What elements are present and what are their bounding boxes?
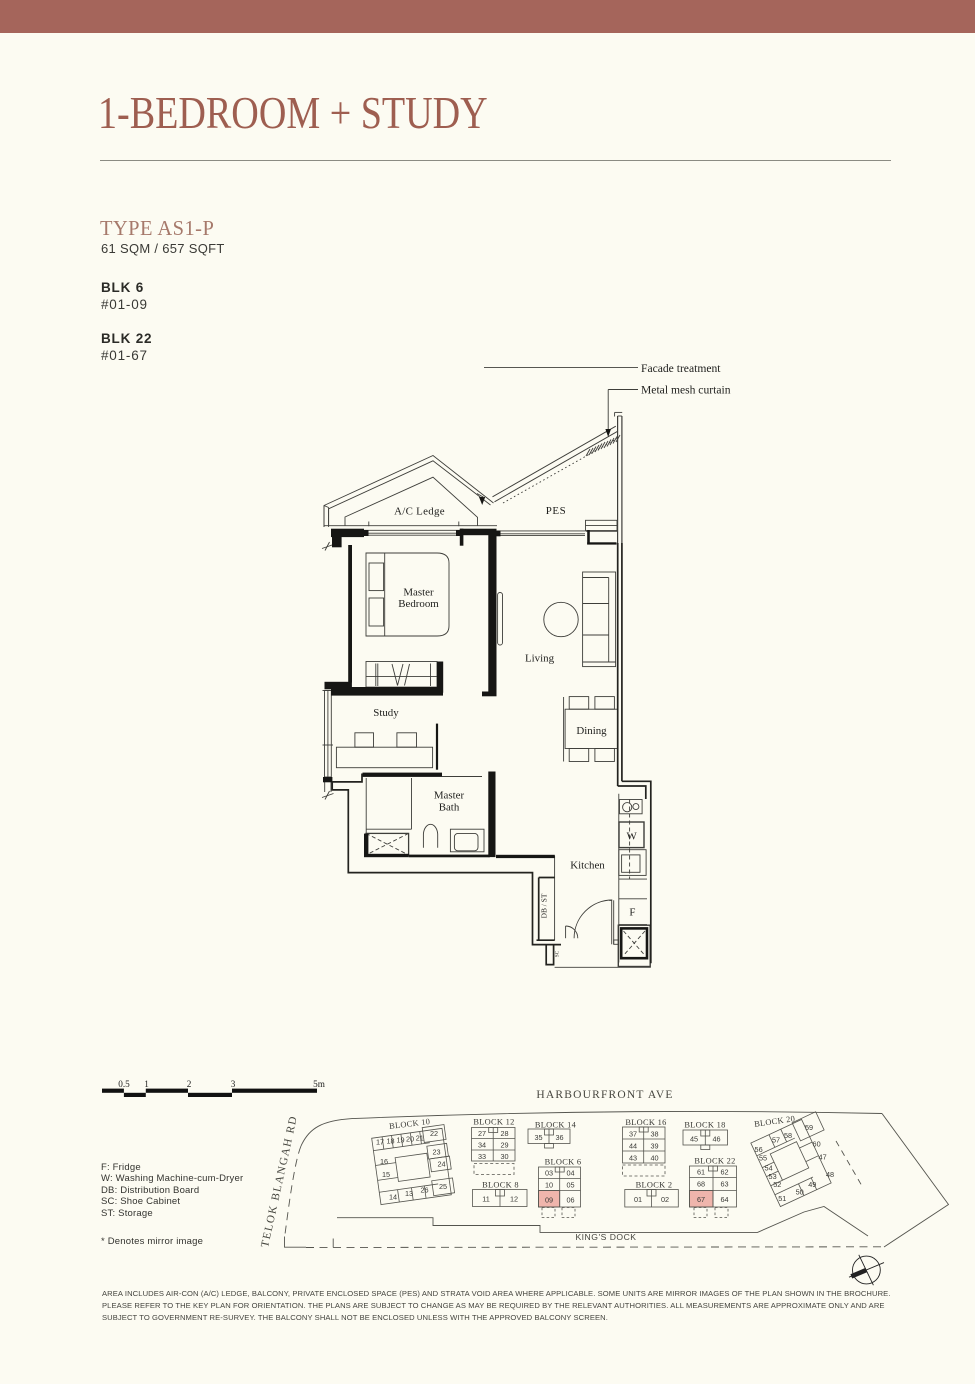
svg-text:BLOCK 14: BLOCK 14 xyxy=(535,1121,577,1130)
svg-text:Living: Living xyxy=(525,653,555,665)
svg-text:49: 49 xyxy=(808,1180,816,1189)
svg-text:30: 30 xyxy=(500,1152,508,1161)
svg-text:04: 04 xyxy=(566,1169,574,1178)
svg-text:48: 48 xyxy=(826,1170,834,1179)
svg-text:0.5: 0.5 xyxy=(118,1079,130,1089)
svg-text:TELOK BLANGAH RD: TELOK BLANGAH RD xyxy=(259,1114,300,1248)
svg-text:45: 45 xyxy=(690,1135,698,1144)
svg-text:SC: SC xyxy=(555,950,560,957)
svg-text:22: 22 xyxy=(430,1129,438,1138)
svg-text:27: 27 xyxy=(478,1129,486,1138)
svg-text:13: 13 xyxy=(405,1189,413,1198)
svg-text:26: 26 xyxy=(420,1186,428,1195)
svg-text:11: 11 xyxy=(482,1195,490,1204)
svg-text:50: 50 xyxy=(796,1188,804,1197)
svg-text:28: 28 xyxy=(500,1129,508,1138)
svg-text:52: 52 xyxy=(773,1180,781,1189)
svg-text:BLOCK 8: BLOCK 8 xyxy=(482,1181,519,1190)
svg-text:BLOCK 22: BLOCK 22 xyxy=(694,1157,735,1166)
svg-text:Metal mesh curtain: Metal mesh curtain xyxy=(641,384,731,397)
svg-text:12: 12 xyxy=(510,1195,518,1204)
svg-text:19: 19 xyxy=(396,1136,404,1145)
svg-text:46: 46 xyxy=(712,1135,720,1144)
svg-text:Bedroom: Bedroom xyxy=(398,598,439,610)
svg-text:16: 16 xyxy=(380,1157,388,1166)
svg-text:36: 36 xyxy=(555,1133,563,1142)
svg-text:37: 37 xyxy=(629,1130,637,1139)
svg-text:HARBOURFRONT AVE: HARBOURFRONT AVE xyxy=(536,1089,673,1101)
svg-text:62: 62 xyxy=(720,1168,728,1177)
svg-text:Bath: Bath xyxy=(439,802,460,814)
svg-text:KING'S DOCK: KING'S DOCK xyxy=(575,1232,636,1242)
svg-text:2: 2 xyxy=(187,1079,192,1089)
svg-text:W: W xyxy=(627,830,638,842)
svg-text:59: 59 xyxy=(805,1123,813,1132)
svg-text:51: 51 xyxy=(778,1194,786,1203)
svg-text:10: 10 xyxy=(545,1181,553,1190)
svg-text:14: 14 xyxy=(389,1193,397,1202)
svg-text:02: 02 xyxy=(661,1195,669,1204)
svg-text:44: 44 xyxy=(629,1142,637,1151)
svg-text:06: 06 xyxy=(566,1196,574,1205)
svg-text:09: 09 xyxy=(545,1196,553,1205)
svg-text:33: 33 xyxy=(478,1152,486,1161)
svg-text:55: 55 xyxy=(759,1154,767,1163)
svg-text:F: F xyxy=(629,907,635,919)
svg-text:15: 15 xyxy=(382,1170,390,1179)
svg-text:BLOCK 16: BLOCK 16 xyxy=(625,1118,666,1127)
svg-text:58: 58 xyxy=(784,1131,792,1140)
svg-text:60: 60 xyxy=(813,1140,821,1149)
svg-text:DB / ST: DB / ST xyxy=(540,893,549,918)
svg-text:3: 3 xyxy=(231,1079,236,1089)
svg-text:39: 39 xyxy=(650,1142,658,1151)
svg-text:Master: Master xyxy=(434,790,465,802)
svg-text:38: 38 xyxy=(650,1130,658,1139)
svg-text:21: 21 xyxy=(416,1134,424,1143)
svg-text:BLOCK 12: BLOCK 12 xyxy=(473,1118,514,1127)
svg-text:1: 1 xyxy=(144,1079,149,1089)
svg-text:BLOCK 20: BLOCK 20 xyxy=(754,1114,796,1129)
svg-text:Master: Master xyxy=(403,587,434,599)
svg-text:05: 05 xyxy=(566,1181,574,1190)
svg-text:Study: Study xyxy=(373,707,399,719)
svg-text:47: 47 xyxy=(819,1153,827,1162)
svg-text:67: 67 xyxy=(697,1195,705,1204)
svg-text:29: 29 xyxy=(500,1141,508,1150)
svg-text:61: 61 xyxy=(697,1168,705,1177)
svg-text:5m: 5m xyxy=(313,1079,325,1089)
svg-text:PES: PES xyxy=(546,505,567,517)
svg-text:35: 35 xyxy=(534,1133,542,1142)
svg-text:63: 63 xyxy=(720,1180,728,1189)
svg-text:34: 34 xyxy=(478,1141,486,1150)
svg-text:17: 17 xyxy=(376,1138,384,1147)
svg-text:18: 18 xyxy=(386,1137,394,1146)
svg-text:20: 20 xyxy=(406,1135,414,1144)
svg-text:24: 24 xyxy=(437,1160,445,1169)
svg-text:Facade treatment: Facade treatment xyxy=(641,362,721,375)
svg-text:25: 25 xyxy=(439,1182,447,1191)
svg-text:68: 68 xyxy=(697,1180,705,1189)
svg-text:03: 03 xyxy=(545,1169,553,1178)
svg-text:BLOCK 6: BLOCK 6 xyxy=(545,1158,582,1167)
svg-text:A/C Ledge: A/C Ledge xyxy=(394,506,445,518)
svg-text:57: 57 xyxy=(772,1136,780,1145)
svg-text:BLOCK 2: BLOCK 2 xyxy=(636,1181,673,1190)
svg-text:Dining: Dining xyxy=(576,725,607,737)
svg-text:64: 64 xyxy=(720,1195,728,1204)
svg-text:BLOCK 18: BLOCK 18 xyxy=(684,1121,725,1130)
svg-text:BLOCK 10: BLOCK 10 xyxy=(389,1117,431,1131)
svg-text:01: 01 xyxy=(634,1195,642,1204)
svg-text:40: 40 xyxy=(650,1154,658,1163)
svg-text:Kitchen: Kitchen xyxy=(570,860,605,872)
svg-text:43: 43 xyxy=(629,1154,637,1163)
svg-text:23: 23 xyxy=(432,1148,440,1157)
